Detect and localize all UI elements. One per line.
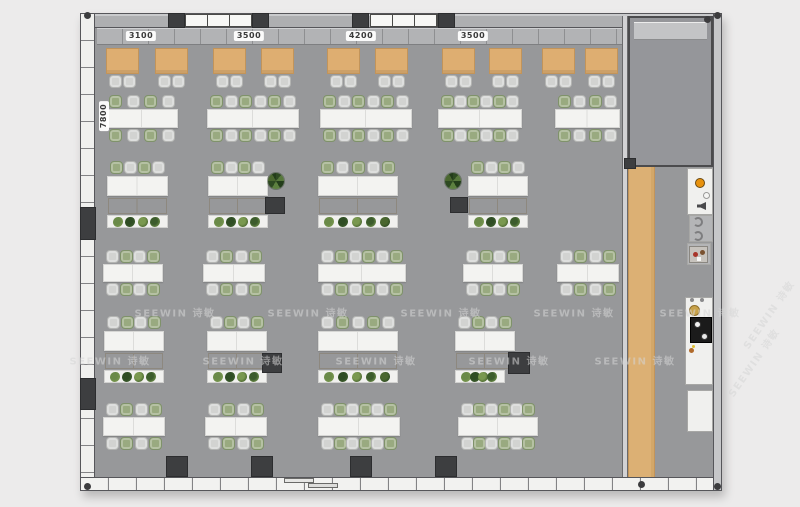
dimension-label: 3100 xyxy=(126,31,156,41)
dimension-label: 3500 xyxy=(458,31,488,41)
labels-layer: 31003500420035007800 xyxy=(0,0,800,507)
floorplan-canvas: 31003500420035007800 SEEWIN 诗敏SEEWIN 诗敏S… xyxy=(0,0,800,507)
dimension-label: 3500 xyxy=(234,31,264,41)
dimension-label: 4200 xyxy=(346,31,376,41)
dimension-label: 7800 xyxy=(99,101,109,131)
